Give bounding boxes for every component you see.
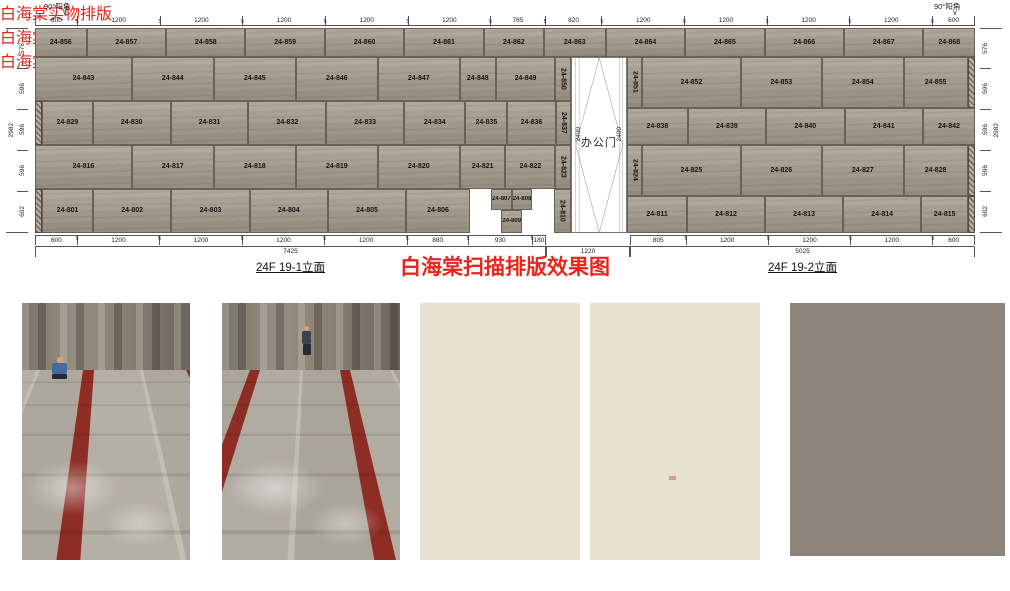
panel-id-label: 24-864 [635, 39, 657, 46]
stone-panel: 24-840 [766, 108, 844, 145]
stone-panel: 24-844 [132, 57, 214, 101]
stone-panel: 24-848 [460, 57, 496, 101]
stone-panel: 24-801 [42, 189, 93, 233]
panel-id-label: 24-834 [424, 119, 446, 126]
wall-corner-photo [790, 303, 1005, 556]
panel-id-label: 24-865 [714, 39, 736, 46]
dim-label: 880 [407, 236, 468, 245]
stone-panel: 24-845 [214, 57, 296, 101]
stone-panel: 24-834 [404, 101, 465, 145]
dim-label: 1200 [684, 16, 767, 25]
side-dims-right: 576596596596602 2982 [980, 28, 1002, 233]
panel-id-label: 24-803 [200, 207, 222, 214]
panel-id-label: 24-823 [560, 156, 567, 178]
wall-right: 24-85124-85224-85324-85424-85524-83824-8… [627, 57, 975, 233]
panel-id-label: 24-840 [794, 123, 816, 130]
dim-segment: 596 [980, 68, 991, 109]
dim-segment: 596 [17, 109, 28, 150]
panel-id-label: 24-833 [354, 119, 376, 126]
stone-panel: 24-807 [491, 189, 512, 210]
top-dimension-row: 6005120051200512005120051200578558205120… [35, 14, 975, 26]
ceiling [420, 303, 580, 339]
stone-panel: 24-866 [765, 28, 844, 57]
corner-return-hatch [35, 101, 42, 145]
drawing-sheet: 90°阳角 ∨ 90°阳角 ∨ 600512005120051200512005… [0, 0, 1010, 591]
panel-id-label: 24-813 [793, 211, 815, 218]
stone-panel: 24-819 [296, 145, 378, 189]
stone-panel: 24-813 [765, 196, 843, 233]
stone-panel: 24-826 [741, 145, 823, 196]
panel-id-label: 24-862 [503, 39, 525, 46]
stone-panel: 24-815 [921, 196, 968, 233]
panel-id-label: 24-857 [115, 39, 137, 46]
side-seg-col-right: 576596596596602 [980, 28, 991, 233]
factory-layout-photo-1 [22, 303, 190, 560]
panel-id-label: 24-856 [50, 39, 72, 46]
panel-id-label: 24-814 [871, 211, 893, 218]
panel-id-label: 24-863 [564, 39, 586, 46]
dim-segment: 596 [980, 150, 991, 191]
panel-id-label: 24-831 [199, 119, 221, 126]
panel-row: 24-81624-81724-81824-81924-82024-82124-8… [35, 145, 571, 189]
stone-panel: 24-820 [378, 145, 460, 189]
panel-id-label: 24-807 [492, 196, 511, 202]
dim-label: 820 [545, 16, 602, 25]
stone-panel: 24-828 [904, 145, 968, 196]
dim-label: 600 [932, 236, 975, 245]
sheet-title: 白海棠扫描排版效果图 [0, 251, 1010, 281]
door-height-dim: 2400 [616, 127, 623, 141]
stone-panel: 24-867 [844, 28, 923, 57]
total-height-dim: 2982 [993, 123, 1000, 137]
stone-panel: 24-841 [845, 108, 923, 145]
corridor-background [420, 303, 580, 560]
stone-panel: 24-856 [35, 28, 87, 57]
dim-label: 602 [19, 206, 26, 217]
dim-label: 1200 [160, 16, 243, 25]
dim-label: 805 [630, 236, 686, 245]
stone-panel: 24-837 [556, 101, 571, 145]
dim-label: 1200 [324, 236, 407, 245]
stone-panel: 24-854 [822, 57, 904, 108]
panel-id-label: 24-852 [681, 79, 703, 86]
panel-id-label: 24-808 [513, 196, 532, 202]
corner-return-hatch [968, 196, 975, 233]
panel-id-label: 24-843 [73, 75, 95, 82]
panel-id-label: 24-802 [121, 207, 143, 214]
panel-id-label: 24-824 [631, 159, 638, 181]
stone-panel: 24-863 [544, 28, 606, 57]
panel-id-label: 24-817 [162, 163, 184, 170]
panel-id-label: 24-806 [427, 207, 449, 214]
stone-panel: 24-832 [248, 101, 326, 145]
stone-panel: 24-836 [507, 101, 556, 145]
dim-label: 1200 [686, 236, 768, 245]
panel-id-label: 24-842 [938, 123, 960, 130]
panel-id-label: 24-836 [521, 119, 543, 126]
panel-id-label: 24-844 [162, 75, 184, 82]
panel-row: 24-80124-80224-80324-80424-80524-80624-8… [35, 189, 571, 233]
dim-label: 602 [982, 206, 989, 217]
panel-id-label: 24-859 [274, 39, 296, 46]
dim-label: 930 [468, 236, 532, 245]
total-height-dim: 2982 [8, 123, 15, 137]
panel-id-label: 24-826 [770, 167, 792, 174]
dim-label: 600 [932, 16, 975, 25]
dim-label: 180 [532, 236, 546, 245]
dim-label: 785 [490, 16, 544, 25]
stone-panel: 24-811 [627, 196, 687, 233]
dim-segment: 596 [980, 109, 991, 150]
dim-segment: 602 [980, 191, 991, 233]
panel-id-label: 24-848 [467, 75, 489, 82]
dim-label: 1200 [849, 16, 932, 25]
panel-id-label: 24-867 [873, 39, 895, 46]
dim-segment: 596 [17, 68, 28, 109]
panel-id-label: 24-827 [852, 167, 874, 174]
panel-id-label: 24-810 [559, 200, 566, 222]
stone-panel: 24-851 [627, 57, 642, 108]
wall-left: 24-84324-84424-84524-84624-84724-84824-8… [35, 57, 571, 233]
panel-id-label: 24-811 [646, 211, 667, 218]
stone-panel: 24-852 [642, 57, 740, 108]
stone-panel: 24-842 [923, 108, 975, 145]
stone-panel: 24-817 [132, 145, 214, 189]
stone-panel: 24-858 [166, 28, 245, 57]
dim-label: 596 [19, 83, 26, 94]
panel-id-label: 24-837 [560, 112, 567, 134]
dim-label: 1200 [242, 236, 325, 245]
dim-label: 1200 [77, 16, 160, 25]
dim-segment: 576 [980, 28, 991, 68]
stone-panel: 24-839 [688, 108, 766, 145]
stone-panel: 24-830 [93, 101, 171, 145]
panel-row: 24-82424-82524-82624-82724-828 [627, 145, 975, 196]
dim-label: 1200 [242, 16, 325, 25]
panel-id-label: 24-861 [433, 39, 455, 46]
worker-figure [660, 467, 686, 504]
panel-id-label: 24-835 [475, 119, 497, 126]
stone-panel: 24-810 [554, 189, 571, 233]
stone-panel: 24-804 [250, 189, 328, 233]
dim-label: 596 [19, 124, 26, 135]
panel-id-label: 24-849 [515, 75, 537, 82]
dim-label: 596 [982, 124, 989, 135]
panel-row: 24-84324-84424-84524-84624-84724-84824-8… [35, 57, 571, 101]
dim-label: 596 [982, 165, 989, 176]
stone-panel: 24-853 [741, 57, 823, 108]
dim-label: 1200 [159, 236, 242, 245]
dim-segment: 602 [17, 191, 28, 233]
panel-row: 24-83824-83924-84024-84124-842 [627, 108, 975, 145]
panel-id-label: 24-815 [934, 211, 956, 218]
panel-id-label: 24-850 [560, 68, 567, 90]
panel-id-label: 24-829 [56, 119, 78, 126]
dim-label: 1200 [601, 16, 684, 25]
panel-id-label: 24-818 [244, 163, 266, 170]
worker-figure [302, 326, 311, 355]
stone-panel: 24-822 [505, 145, 555, 189]
panel-id-label: 24-812 [715, 211, 737, 218]
stone-panel: 24-812 [687, 196, 765, 233]
dim-label: 1200 [768, 236, 850, 245]
stone-panel: 24-835 [465, 101, 507, 145]
stone-panel: 24-823 [555, 145, 570, 189]
panel-id-label: 24-868 [938, 39, 960, 46]
stone-panel: 24-850 [555, 57, 570, 101]
dim-label: 576 [19, 43, 26, 54]
stone-panel: 24-865 [685, 28, 764, 57]
stone-panel: 24-827 [822, 145, 904, 196]
dim-label: 1200 [77, 236, 160, 245]
corner-return-hatch [968, 145, 975, 196]
stone-panel: 24-805 [328, 189, 406, 233]
panel-id-label: 24-819 [326, 163, 348, 170]
corner-return-hatch [35, 189, 42, 233]
dim-label: 600 [35, 16, 77, 25]
stone-panel: 24-859 [245, 28, 324, 57]
stone-panel: 24-862 [484, 28, 544, 57]
dim-label: 1200 [408, 16, 491, 25]
panel-id-label: 24-801 [57, 207, 79, 214]
stone-panel: 24-816 [35, 145, 132, 189]
panel-id-label: 24-851 [631, 71, 638, 93]
stone-panel: 24-868 [923, 28, 975, 57]
panel-id-label: 24-845 [244, 75, 266, 82]
panel-id-label: 24-838 [646, 123, 668, 130]
factory-layout-photo-2 [222, 303, 400, 560]
panel-row: 24-81124-81224-81324-81424-815 [627, 196, 975, 233]
worker-figure [52, 357, 67, 379]
panel-id-label: 24-846 [326, 75, 348, 82]
stone-panel: 24-802 [93, 189, 171, 233]
panel-row: 24-85124-85224-85324-85424-855 [627, 57, 975, 108]
stone-panel: 24-855 [904, 57, 968, 108]
elevation-drawing: 24-85624-85724-85824-85924-86024-86124-8… [35, 28, 975, 233]
side-seg-col-left: 576596596596602 [17, 28, 28, 233]
corridor-install-photo-2 [590, 303, 760, 560]
panel-id-label: 24-804 [278, 207, 300, 214]
stone-panel: 24-808 [512, 189, 533, 210]
corridor-install-photo-1 [420, 303, 580, 560]
panel-id-label: 24-805 [356, 207, 378, 214]
stone-panel: 24-803 [171, 189, 249, 233]
panel-id-label: 24-816 [73, 163, 95, 170]
dim-label: 1200 [850, 236, 932, 245]
stone-panel: 24-857 [87, 28, 166, 57]
dim-label: 1200 [767, 16, 850, 25]
dim-label: 1200 [325, 16, 408, 25]
panel-id-label: 24-832 [276, 119, 298, 126]
stone-panel: 24-847 [378, 57, 460, 101]
stone-panel: 24-838 [627, 108, 687, 145]
panel-id-label: 24-855 [925, 79, 947, 86]
panel-id-label: 24-847 [408, 75, 430, 82]
corner-return-hatch [968, 57, 975, 108]
floor-reflection [22, 380, 190, 560]
stone-panel: 24-831 [171, 101, 249, 145]
dim-label: 596 [19, 165, 26, 176]
stone-panel: 24-809 [501, 210, 522, 233]
stone-panel: 24-829 [42, 101, 93, 145]
door-height-dim: 2400 [575, 127, 582, 141]
panel-id-label: 24-830 [121, 119, 143, 126]
panel-id-label: 24-854 [852, 79, 874, 86]
stone-panel: 24-818 [214, 145, 296, 189]
stone-panel: 24-833 [326, 101, 404, 145]
panel-id-label: 24-822 [520, 163, 542, 170]
dim-label: 596 [982, 83, 989, 94]
panel-id-label: 24-825 [681, 167, 703, 174]
panel-id-label: 24-858 [195, 39, 217, 46]
panel-id-label: 24-866 [793, 39, 815, 46]
top-panel-row: 24-85624-85724-85824-85924-86024-86124-8… [35, 28, 975, 57]
dim-segment: 576 [17, 28, 28, 68]
stone-panel: 24-864 [606, 28, 685, 57]
floor-reflection [222, 380, 400, 560]
panel-id-label: 24-828 [925, 167, 947, 174]
panel-id-label: 24-821 [472, 163, 494, 170]
office-door: 办公门 2400 2400 [571, 57, 627, 233]
panel-id-label: 24-853 [770, 79, 792, 86]
panel-id-label: 24-841 [873, 123, 895, 130]
stone-panel: 24-843 [35, 57, 132, 101]
panel-id-label: 24-809 [502, 218, 521, 224]
stone-panel: 24-821 [460, 145, 506, 189]
dim-label: 576 [982, 43, 989, 54]
corridor-background [590, 303, 760, 560]
panel-id-label: 24-860 [354, 39, 376, 46]
stone-panel: 24-814 [843, 196, 921, 233]
dim-label: 600 [35, 236, 77, 245]
dim-segment: 596 [17, 150, 28, 191]
stone-panel: 24-824 [627, 145, 642, 196]
stone-panel: 24-861 [404, 28, 483, 57]
panel-id-label: 24-839 [716, 123, 738, 130]
panel-id-label: 24-820 [408, 163, 430, 170]
side-dims-left: 2982 576596596596602 [6, 28, 28, 233]
stone-panel: 24-846 [296, 57, 378, 101]
stone-panel: 24-806 [406, 189, 470, 233]
stone-panel-stack: 24-80724-80824-809 [470, 189, 554, 233]
panel-row: 24-82924-83024-83124-83224-83324-83424-8… [35, 101, 571, 145]
stone-panel: 24-860 [325, 28, 404, 57]
stone-panel: 24-849 [496, 57, 556, 101]
stone-panel: 24-825 [642, 145, 740, 196]
